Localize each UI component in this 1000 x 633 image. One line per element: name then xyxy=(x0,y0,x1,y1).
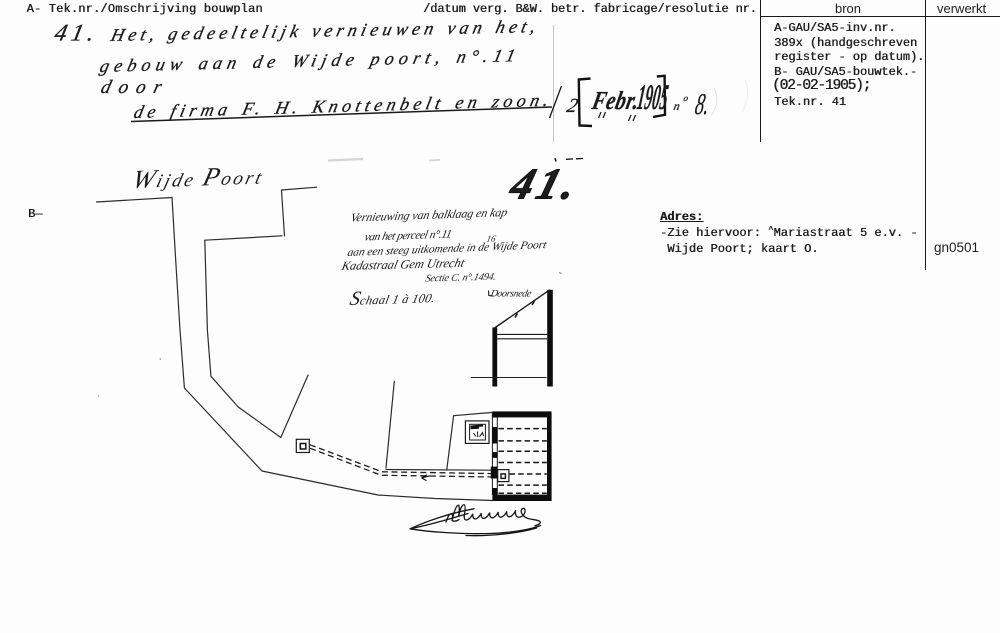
svg-text:41.: 41. xyxy=(504,159,586,208)
svg-text:Sectie C. n°.1494.: Sectie C. n°.1494. xyxy=(424,272,497,285)
svg-text:o: o xyxy=(683,93,690,103)
svg-text:door: door xyxy=(99,77,172,98)
svg-text:2: 2 xyxy=(565,95,580,117)
svg-text:gebouw aan de Wijde poort, n°.: gebouw aan de Wijde poort, n°.11 xyxy=(98,45,522,76)
svg-text:1905: 1905 xyxy=(635,78,671,118)
svg-text:n: n xyxy=(672,99,681,113)
svg-text:8.: 8. xyxy=(693,89,712,121)
svg-text:41.: 41. xyxy=(52,20,101,47)
svg-text:Vernieuwing van balklaag en ka: Vernieuwing van balklaag en kap xyxy=(349,205,508,224)
svg-text:Schaal 1 à 100.: Schaal 1 à 100. xyxy=(348,285,438,310)
svg-text:van het perceel n°.11: van het perceel n°.11 xyxy=(363,228,452,244)
svg-text:Febr.: Febr. xyxy=(589,87,642,116)
svg-text:Het, gedeeltelijk vernieuwen v: Het, gedeeltelijk vernieuwen van het, xyxy=(108,16,542,45)
svg-text:Wijde Poort: Wijde Poort xyxy=(130,160,269,194)
svg-text:de firma F. H. Knottenbelt en: de firma F. H. Knottenbelt en zoon. xyxy=(132,90,555,122)
svg-text:Kadastraal Gem Utrecht: Kadastraal Gem Utrecht xyxy=(339,256,466,273)
svg-text:Doorsnede: Doorsnede xyxy=(488,289,533,300)
